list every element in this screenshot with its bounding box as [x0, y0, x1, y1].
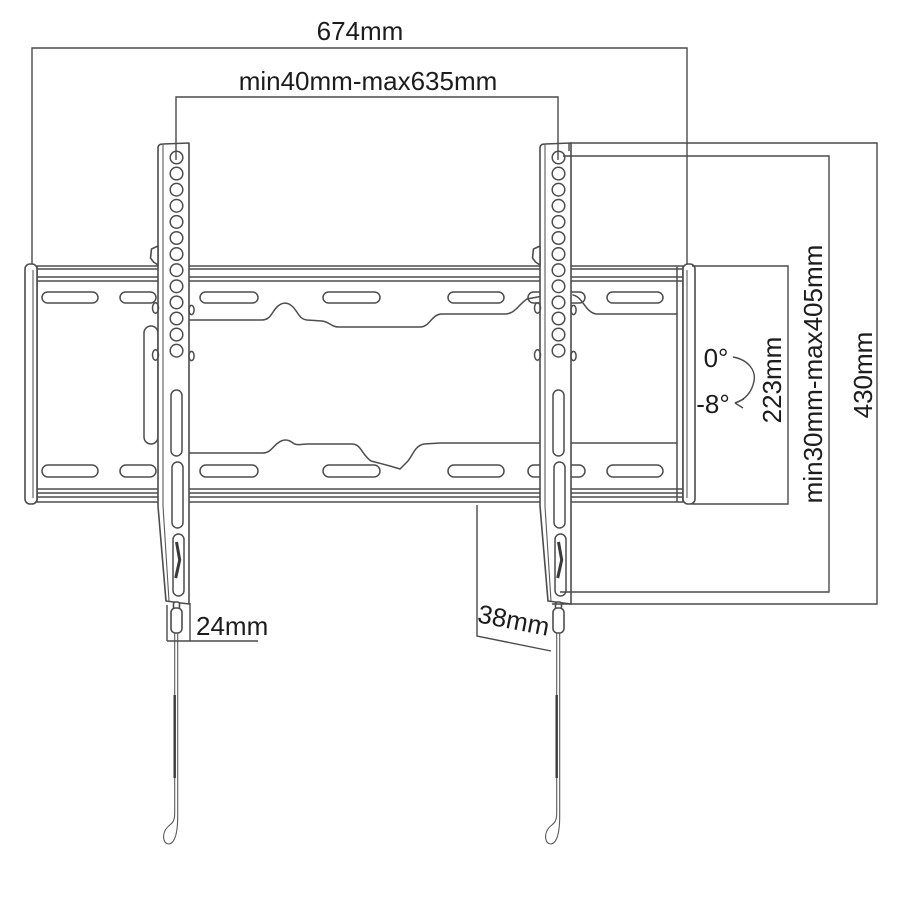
mount-diagram-svg: 674mm min40mm-max635mm 223mm min30mm-max…	[0, 0, 901, 901]
dimension-vesa-width: min40mm-max635mm	[176, 66, 558, 160]
wall-plate	[25, 264, 695, 504]
dimension-total-width: 674mm	[32, 16, 687, 264]
tilt-arc-arrowhead	[735, 399, 744, 408]
dimension-plate-height: 223mm	[692, 266, 788, 504]
dim-vesa-height-label: min30mm-max405mm	[798, 245, 828, 504]
tilt-arc	[733, 357, 754, 403]
dim-vesa-width-label: min40mm-max635mm	[239, 66, 498, 96]
tilt-upper-label: 0°	[704, 343, 729, 373]
left-end-cap	[25, 264, 37, 504]
dim-plate-height-label: 223mm	[757, 337, 787, 424]
right-end-cap	[683, 264, 695, 504]
dim-bottom-right-label: 38mm	[475, 599, 552, 642]
tilt-annotation: 0° -8°	[696, 343, 754, 419]
dimension-bottom-right: 38mm	[475, 505, 552, 651]
dim-bracket-height-label: 430mm	[848, 332, 878, 419]
tilt-lower-label: -8°	[696, 389, 730, 419]
dim-bottom-left-label: 24mm	[196, 611, 268, 641]
tv-mount-dimension-drawing: 674mm min40mm-max635mm 223mm min30mm-max…	[0, 0, 901, 901]
dim-total-width-label: 674mm	[317, 16, 404, 46]
